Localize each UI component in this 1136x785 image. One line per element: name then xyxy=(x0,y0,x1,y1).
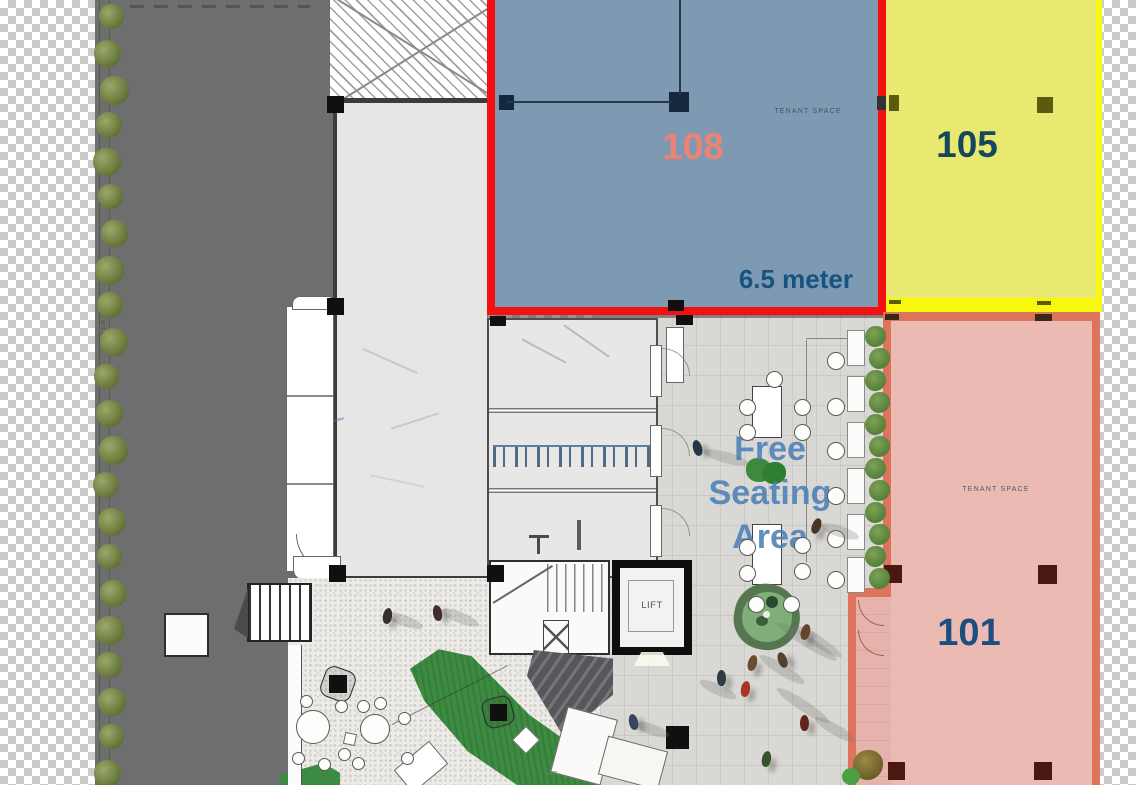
stair-steps xyxy=(547,564,605,612)
space-101-fill xyxy=(891,320,1092,785)
room-door xyxy=(650,425,662,477)
chair-icon xyxy=(739,424,756,441)
chair-icon xyxy=(827,571,845,589)
chair-icon xyxy=(398,712,411,725)
stair-x-box xyxy=(543,620,569,654)
street-tree-icon xyxy=(101,220,128,247)
space-101-border-top xyxy=(883,312,1100,321)
sketch-mark xyxy=(521,338,566,363)
chair-icon xyxy=(827,398,845,416)
column xyxy=(329,675,347,693)
grid-line xyxy=(507,101,672,103)
tree-center-dot xyxy=(763,611,770,618)
road-white-pad xyxy=(164,613,209,657)
chair-icon xyxy=(827,442,845,460)
lift-small-label: LIFT xyxy=(546,771,557,777)
street-tree-icon xyxy=(95,616,124,645)
space-108-number: 108 xyxy=(635,126,751,168)
hatch-cross-line xyxy=(330,0,487,103)
street-tree-icon xyxy=(96,112,122,138)
chair-icon xyxy=(318,758,331,771)
street-tree-icon xyxy=(100,76,129,105)
sketch-mark xyxy=(563,324,609,357)
space-101-number: 101 xyxy=(899,612,1039,655)
free-seating-line2: Seating xyxy=(700,474,840,513)
room-divider-wall xyxy=(489,408,656,413)
street-tree-icon xyxy=(99,724,124,749)
column xyxy=(327,96,344,113)
cafe-table xyxy=(360,714,390,744)
room-divider-wall xyxy=(489,488,656,493)
street-tree-icon xyxy=(94,364,119,389)
chair-icon xyxy=(739,399,756,416)
column xyxy=(669,92,689,112)
chair-icon xyxy=(794,563,811,580)
bush-icon xyxy=(842,768,860,785)
road-dashed-line xyxy=(130,5,310,8)
street-tree-icon xyxy=(97,292,123,318)
space-108: TENANT SPACE 108 6.5 meter xyxy=(487,0,886,315)
bench-seat xyxy=(847,422,865,458)
column xyxy=(889,95,899,111)
street-tree-icon xyxy=(100,328,128,356)
column xyxy=(1034,762,1052,780)
tenant-space-label-108: TENANT SPACE xyxy=(753,108,863,115)
lift-shaft: LIFT xyxy=(612,560,692,655)
column xyxy=(487,565,504,582)
lift-label: LIFT xyxy=(620,600,684,611)
chair-icon xyxy=(374,697,387,710)
building-top-wall xyxy=(330,98,490,103)
street-tree-icon xyxy=(99,4,124,29)
chair-icon xyxy=(827,487,845,505)
stair-core xyxy=(489,560,610,655)
column xyxy=(676,315,693,325)
space-105-bottom-border xyxy=(886,298,1102,312)
bench-seat xyxy=(847,330,865,366)
external-stairs xyxy=(247,583,312,642)
street-tree-icon xyxy=(95,256,124,285)
column xyxy=(499,95,514,110)
skyline-sketch xyxy=(493,445,651,467)
chair-icon xyxy=(357,700,370,713)
chair-icon xyxy=(300,695,313,708)
column xyxy=(327,298,344,315)
room-door xyxy=(650,345,662,397)
column xyxy=(490,316,506,326)
street-tree-icon xyxy=(100,580,127,607)
person-icon xyxy=(717,670,726,686)
street-tree-icon xyxy=(98,508,126,536)
column-nub xyxy=(877,96,886,110)
chair-icon xyxy=(739,565,756,582)
square-chair xyxy=(343,732,357,746)
chair-icon xyxy=(827,352,845,370)
street-tree-icon xyxy=(98,688,126,716)
rooms-block xyxy=(487,318,658,578)
column xyxy=(888,762,905,780)
hatch-cross-line xyxy=(330,0,487,103)
room-door xyxy=(650,505,662,557)
window-strip xyxy=(286,306,334,572)
chair-icon xyxy=(352,757,365,770)
tenant-space-label-101: TENANT SPACE xyxy=(930,486,1062,493)
column xyxy=(885,314,899,320)
column xyxy=(329,565,346,582)
street-tree-icon xyxy=(98,184,123,209)
street-tree-icon xyxy=(97,544,122,569)
window-divider xyxy=(287,395,333,397)
hatched-area xyxy=(330,0,487,103)
column xyxy=(1037,301,1051,305)
space-105-number: 105 xyxy=(897,124,1037,166)
space-105: 105 xyxy=(886,0,1102,312)
column xyxy=(668,300,684,311)
bench-seat xyxy=(847,376,865,412)
column xyxy=(1038,565,1057,584)
street-tree-icon xyxy=(94,40,121,67)
bench-seat xyxy=(847,468,865,504)
street-tree-icon xyxy=(93,472,119,498)
street-tree-icon xyxy=(94,760,121,785)
chair-icon xyxy=(292,752,305,765)
chair-icon xyxy=(748,596,765,613)
street-tree-icon xyxy=(99,436,128,465)
chair-icon xyxy=(794,424,811,441)
column xyxy=(490,704,507,721)
street-tree-icon xyxy=(96,400,123,427)
street-tree-icon xyxy=(93,148,121,176)
space-101-border-right xyxy=(1092,312,1100,785)
column xyxy=(889,300,901,304)
column xyxy=(1037,97,1053,113)
dimension-label-108: 6.5 meter xyxy=(695,264,853,295)
grid-line xyxy=(679,0,681,95)
chair-icon xyxy=(766,371,783,388)
bench-seat xyxy=(847,557,865,593)
column xyxy=(1035,314,1052,321)
chair-icon xyxy=(783,596,800,613)
chair-icon xyxy=(794,399,811,416)
chair-icon xyxy=(401,752,414,765)
person-icon xyxy=(800,715,809,731)
window-divider xyxy=(287,483,333,485)
street-tree-icon xyxy=(96,652,122,678)
column xyxy=(666,726,689,749)
chair-icon xyxy=(794,537,811,554)
chair-icon xyxy=(739,539,756,556)
tree-blob xyxy=(766,596,778,608)
chair-icon xyxy=(335,700,348,713)
floor-plan-canvas: GREEN WALL xyxy=(0,0,1136,785)
sketch-mark xyxy=(577,520,581,550)
cafe-table xyxy=(296,710,330,744)
sketch-mark xyxy=(537,538,540,554)
chair-icon xyxy=(338,748,351,761)
building-interior xyxy=(337,103,487,579)
